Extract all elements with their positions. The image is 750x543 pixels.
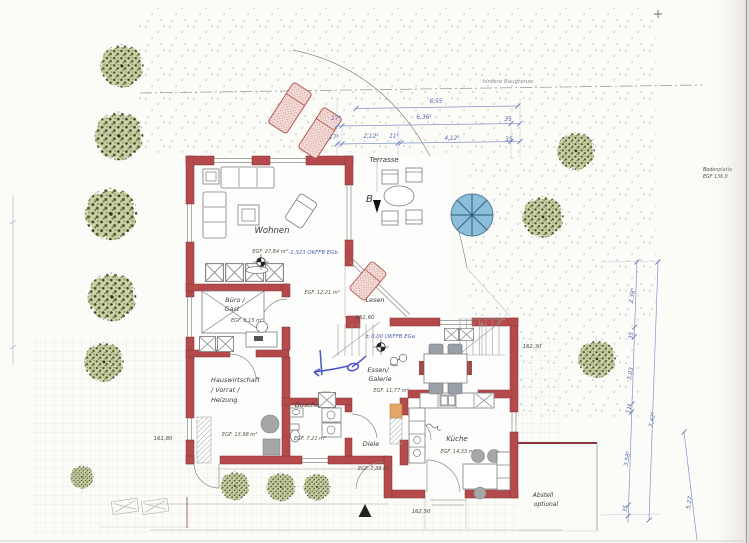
dim: 17⁵ xyxy=(331,115,341,122)
room-level-essen: ± 0,00 OKFFB EGa xyxy=(365,334,415,340)
cabinet xyxy=(459,328,473,340)
room-area-hw: EGF. 13,98 m² xyxy=(222,432,257,438)
room-label-diele: Diele xyxy=(363,440,380,448)
dim: 2,12⁵ xyxy=(363,133,379,140)
scanned-floor-plan-page: hintere Baugrenze xyxy=(0,0,750,543)
room-label-hw-1: Hauswirtschaft xyxy=(211,376,260,384)
dim: 4,12⁵ xyxy=(444,135,460,142)
dim-total: 6,55 xyxy=(430,99,443,105)
spot-height-left: 161,80 xyxy=(154,436,173,442)
room-label-kueche: Küche xyxy=(446,435,467,443)
dim: 11⁵ xyxy=(389,133,399,140)
bush xyxy=(70,465,93,488)
cabinet xyxy=(218,336,234,351)
spot-height-east: 162,30 xyxy=(523,344,542,350)
room-area-lesen: EGF. 12,21 m² xyxy=(304,290,339,296)
parasol xyxy=(451,194,493,236)
room-label-essen-2: Galerie xyxy=(368,375,391,383)
tree xyxy=(95,112,144,161)
sideboard xyxy=(206,264,224,282)
bush xyxy=(221,472,250,501)
shower xyxy=(319,392,336,407)
room-label-buero-1: Büro / xyxy=(225,296,245,304)
spot-height-stair: 161,60 xyxy=(356,315,375,321)
room-area-essen: EGF. 11,77 m² xyxy=(373,388,408,394)
room-label-hw-3: Heizung xyxy=(211,396,237,404)
dim: 35 xyxy=(505,137,513,143)
room-area-dusche: EGF. 7,21 m² xyxy=(294,436,326,442)
section-marker-label: B xyxy=(366,194,373,205)
rear-boundary-label: hintere Baugrenze xyxy=(483,79,535,85)
room-label-hw-2: / Vorrat / xyxy=(210,386,240,394)
tree xyxy=(522,196,563,237)
dim: 35 xyxy=(504,117,512,123)
dim: 6,36⁵ xyxy=(416,114,432,121)
room-area-kueche: EGF. 14,33 m² xyxy=(440,449,475,455)
sideboard xyxy=(266,264,284,282)
room-area-wohnen: EGF. 27,84 m² xyxy=(252,249,287,255)
room-label-lesen: Lesen xyxy=(365,296,384,304)
room-area-diele: EGF. 7,38 m² xyxy=(358,466,390,472)
bush xyxy=(304,474,331,501)
sideboard xyxy=(226,264,244,282)
shaft xyxy=(390,404,402,418)
room-label-essen-1: Essen/ xyxy=(367,366,389,374)
spot-height-entrance: 162,50 xyxy=(412,509,431,515)
floor-plan-canvas: hintere Baugrenze xyxy=(0,0,750,543)
tree xyxy=(85,188,137,240)
room-label-buero-2: Gast xyxy=(225,305,240,313)
tree xyxy=(88,273,137,322)
room-label-wohnen: Wohnen xyxy=(255,226,290,236)
tree xyxy=(578,340,616,378)
tree xyxy=(100,44,143,87)
tree xyxy=(557,132,595,170)
tree xyxy=(84,342,124,382)
shed-label-1: Abstell xyxy=(532,492,554,499)
room-label-dusche: Dusche xyxy=(295,401,319,409)
room-area-buero: EGF. 8,15 m² xyxy=(231,318,263,324)
shed-label-2: optional xyxy=(534,501,559,508)
bush xyxy=(267,473,296,502)
room-level-wohnen: -1,323 OKFFB EGb xyxy=(288,250,338,256)
dim: 17⁵ xyxy=(329,134,339,141)
room-label-terrasse: Terrasse xyxy=(369,156,398,164)
cabinet xyxy=(444,328,458,340)
cabinet xyxy=(200,336,216,351)
